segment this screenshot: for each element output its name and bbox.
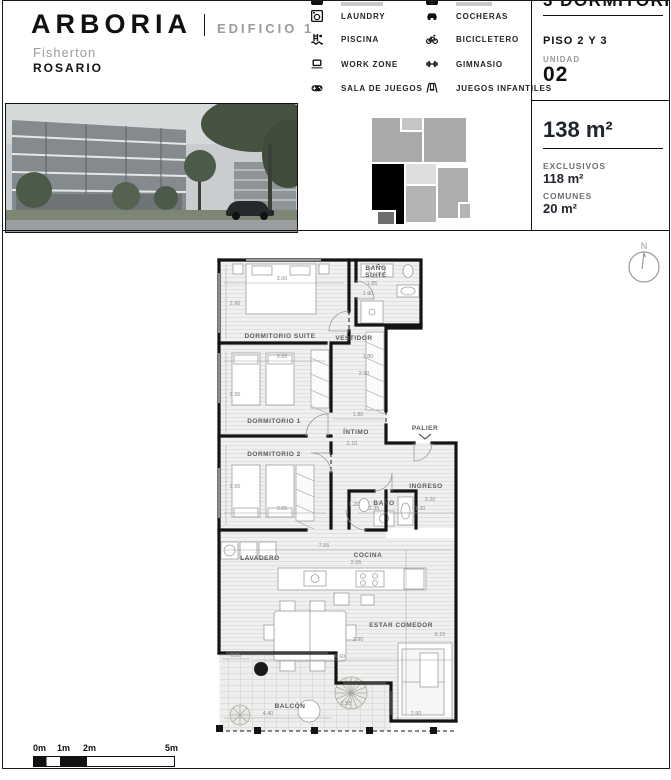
svg-text:6.60: 6.60 (335, 654, 346, 660)
building-photo (5, 103, 298, 233)
room-label-dorm2: DORMITORIO 2 (247, 451, 301, 458)
amenity-label: GIMNASIO (456, 60, 503, 69)
svg-text:SUITE: SUITE (365, 272, 387, 279)
amenity-label: COCHERAS (456, 12, 508, 21)
scale-tick-5m: 5m (165, 743, 178, 753)
svg-text:1.20: 1.20 (349, 502, 360, 508)
room-label-estar: ESTAR COMEDOR (369, 622, 433, 629)
amenity-label: WORK ZONE (341, 60, 398, 69)
amenity-label-cut-right (456, 2, 492, 6)
unit-number: 02 (543, 63, 568, 87)
svg-text:3.65: 3.65 (277, 354, 288, 360)
car-icon (426, 10, 438, 22)
svg-text:2.90: 2.90 (230, 301, 241, 307)
svg-text:1.30: 1.30 (415, 506, 426, 512)
building-render (6, 104, 297, 232)
unit-panel-rule (531, 100, 670, 101)
scale-bar-graphic (33, 756, 175, 767)
amenity-label: SALA DE JUEGOS (341, 84, 423, 93)
svg-text:2.90: 2.90 (411, 711, 422, 717)
svg-text:2.95: 2.95 (230, 484, 241, 490)
compass-north-label: N (641, 241, 648, 251)
svg-text:1.85: 1.85 (367, 281, 378, 287)
svg-text:1.90: 1.90 (363, 291, 374, 297)
unit-title: 3 DORMITORIOS (543, 0, 670, 11)
common-area: 20 m² (543, 201, 577, 216)
floor-label: PISO 2 Y 3 (543, 35, 608, 47)
exclusive-label: EXCLUSIVOS (543, 161, 606, 171)
pool-icon (311, 33, 323, 45)
room-label-suite: DORMITORIO SUITE (244, 333, 315, 340)
title-rule (543, 15, 663, 16)
svg-text:1.80: 1.80 (353, 412, 364, 418)
amenity-label: PISCINA (341, 35, 379, 44)
scale-tick-0m: 0m (33, 743, 46, 753)
toilet (403, 265, 413, 278)
room-label-lavadero: LAVADERO (240, 555, 280, 562)
amenity-icon-cut-right (426, 0, 438, 5)
compass: N (623, 239, 665, 287)
room-label-ingreso: INGRESO (409, 483, 442, 490)
room-label-vestidor: VESTIDOR (335, 335, 372, 342)
brochure-page: ARBORIAEDIFICIO 1 Fisherton ROSARIO LAUN… (0, 0, 671, 780)
band-divider (3, 230, 669, 231)
page-title: ARBORIAEDIFICIO 1 (31, 9, 314, 40)
svg-text:7.55: 7.55 (319, 543, 330, 549)
scale-tick-1m: 1m (57, 743, 70, 753)
common-label: COMUNES (543, 191, 592, 201)
room-label-palier: PALIER (412, 425, 438, 432)
amenity-label: LAUNDRY (341, 12, 385, 21)
svg-text:4.40: 4.40 (263, 711, 274, 717)
svg-text:2.90: 2.90 (353, 637, 364, 643)
svg-text:1.55: 1.55 (341, 701, 352, 707)
svg-text:2.90: 2.90 (359, 371, 370, 377)
scale-tick-2m: 2m (83, 743, 96, 753)
room-label-bano-suite: BAÑO (365, 263, 386, 272)
gameroom-icon (311, 82, 323, 94)
svg-text:3.60: 3.60 (277, 276, 288, 282)
area-rule (543, 148, 663, 149)
svg-text:3.65: 3.65 (277, 506, 288, 512)
room-label-cocina: COCINA (354, 552, 383, 559)
svg-text:2.95: 2.95 (230, 392, 241, 398)
neighborhood-label: Fisherton (33, 45, 96, 60)
workzone-icon (311, 58, 323, 70)
bicycle-icon (426, 33, 438, 45)
laundry-icon (311, 10, 323, 22)
brand-name: ARBORIA (31, 9, 192, 39)
room-label-bano: BAÑO (373, 498, 394, 507)
brand-separator (204, 14, 205, 36)
exclusive-area: 118 m² (543, 171, 583, 186)
amenity-label: BICICLETERO (456, 35, 519, 44)
amenity-label: JUEGOS INFANTILES (456, 84, 552, 93)
floor-plan: 3.60 2.90 1.85 1.90 1.80 2.90 3.65 2.95 … (216, 253, 466, 745)
palier-entry-chevron (419, 434, 431, 439)
svg-text:2.05: 2.05 (351, 560, 362, 566)
svg-text:2.10: 2.10 (347, 441, 358, 447)
playground-icon (426, 82, 438, 94)
scale-bar: 0m 1m 2m 5m (33, 743, 193, 769)
city-label: ROSARIO (33, 61, 103, 75)
panel-divider (531, 1, 532, 230)
svg-text:0.85: 0.85 (231, 653, 242, 659)
gym-icon (426, 58, 438, 70)
svg-text:3.20: 3.20 (425, 497, 436, 503)
room-label-balcon: BALCÓN (275, 701, 306, 710)
sheet-border: ARBORIAEDIFICIO 1 Fisherton ROSARIO LAUN… (2, 0, 670, 769)
amenity-icon-cut-left (311, 0, 323, 5)
room-label-intimo: ÍNTIMO (343, 427, 369, 436)
svg-text:6.15: 6.15 (435, 632, 446, 638)
total-area: 138 m² (543, 117, 613, 143)
room-label-dorm1: DORMITORIO 1 (247, 418, 301, 425)
key-plan (359, 113, 509, 225)
svg-text:1.80: 1.80 (363, 354, 374, 360)
building-name: EDIFICIO 1 (217, 21, 314, 36)
amenity-label-cut-left (341, 2, 383, 6)
